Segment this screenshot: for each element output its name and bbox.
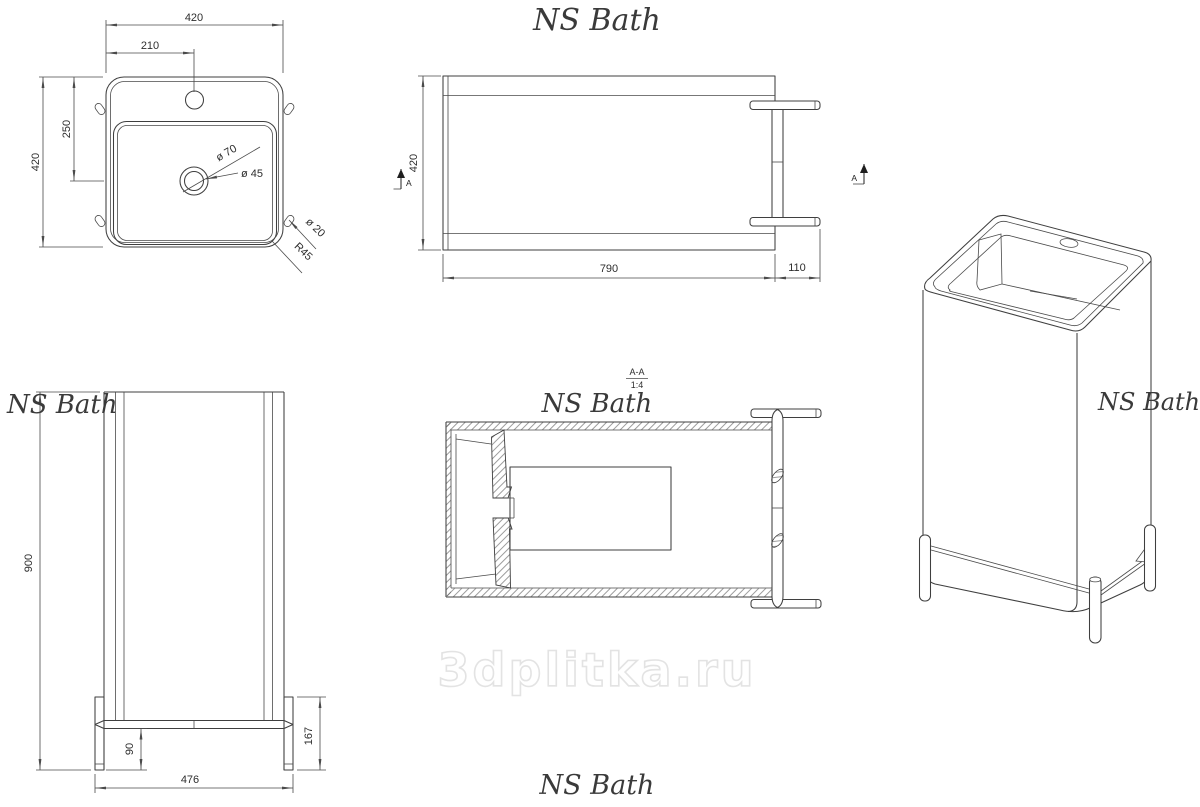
dim-side-hole: ø 20 [303,216,327,240]
brand-logo-center: NS Bath [541,389,653,419]
dim-top-depth: 420 [30,153,42,171]
faucet-hole [186,91,204,109]
dim-plan-depth: 420 [408,154,420,172]
dim-front-height: 900 [23,554,35,572]
section-marker-label: A [406,178,412,188]
site-watermark: 3dplitka.ru [438,643,757,697]
iso-faucet-hole [1060,238,1079,249]
view-basin-top: 420 210 420 250 ø 70 ø 45 ø 20 R45 [30,12,327,273]
section-cavity [510,467,671,550]
view-isometric [920,215,1156,643]
dim-top-width: 420 [185,12,203,24]
brand-logo-bottom: NS Bath [539,770,655,801]
brand-logo-left: NS Bath [6,390,118,420]
view-front: 900 90 167 476 [23,392,326,793]
section-marker-right: A [851,164,864,184]
section-wall-top [447,423,772,431]
brand-logo-right: NS Bath [1097,388,1200,416]
dim-plan-leg: 110 [788,262,806,274]
dim-drain-outer: ø 70 [214,143,239,164]
technical-drawing: 420 210 420 250 ø 70 ø 45 ø 20 R45 [0,0,1200,807]
view-pedestal-plan: A A 420 790 110 [394,76,865,282]
dim-drain-inner: ø 45 [241,168,263,180]
side-tabs [94,102,296,228]
section-wall-left [447,423,452,596]
dim-base-width: 476 [181,774,199,786]
section-title: A-A [629,367,644,377]
iso-legs [920,525,1156,643]
section-title-block: A-A 1:4 [626,367,648,390]
front-legs [95,697,293,770]
leg-frame [750,101,820,226]
section-leg-frame [751,409,821,608]
dim-drain-offset: 250 [61,120,73,138]
dim-ground-clearance: 90 [124,743,136,755]
dim-faucet-offset: 210 [141,40,159,52]
section-marker-label: A [851,173,857,183]
iso-basin-wall [977,234,1002,290]
section-wall-bottom [447,589,772,597]
iso-rails [931,546,1147,595]
dim-plan-body: 790 [600,263,618,275]
drawing-sheet: 420 210 420 250 ø 70 ø 45 ø 20 R45 [0,0,1200,807]
drain-hole-inner [185,172,204,191]
section-basin [456,430,514,588]
brand-logo-top: NS Bath [532,3,661,38]
dim-leg-height: 167 [303,727,315,745]
